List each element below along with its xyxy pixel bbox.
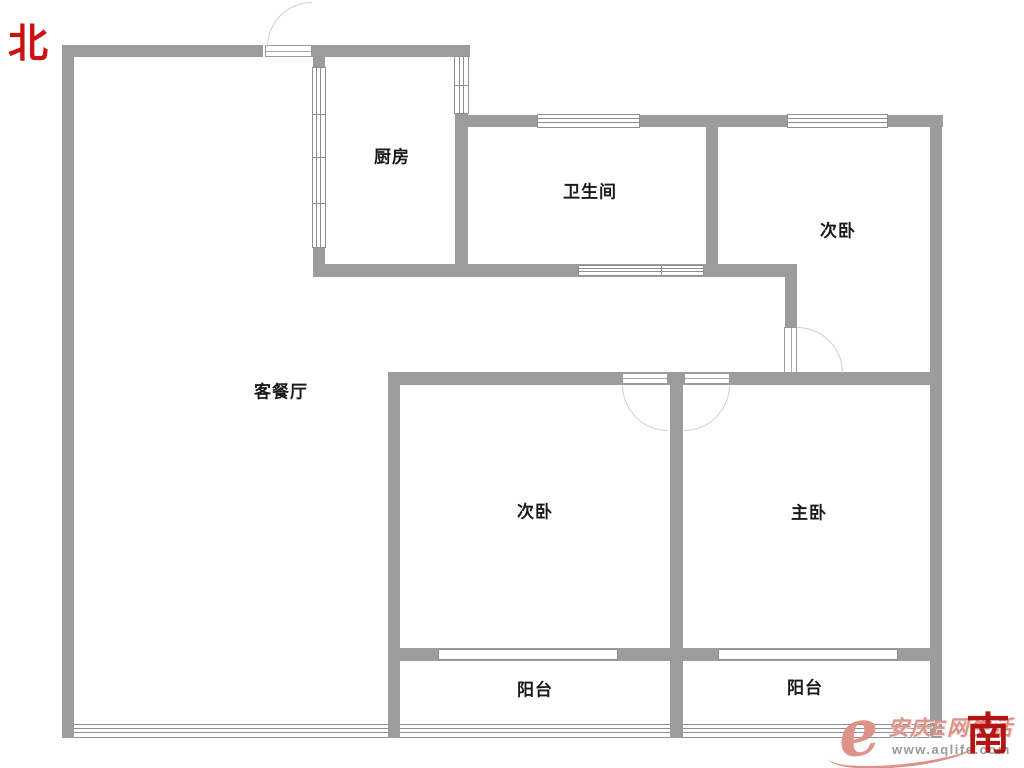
- watermark-logo-icon: e: [833, 694, 884, 768]
- master-bedroom-door-arc: [684, 385, 730, 431]
- room-label-kitchen: 厨房: [374, 143, 410, 168]
- floor-plan: 厨房 卫生间 次卧 客餐厅 次卧 主卧 阳台 阳台 e 安庆E网生活 www.a…: [0, 0, 1024, 768]
- bedroom-bottom-door-leaf: [622, 373, 668, 384]
- room-label-bedroom-top: 次卧: [820, 217, 856, 242]
- window-balcony-left: [438, 649, 618, 660]
- wall-top-left: [62, 45, 263, 57]
- wall-right-exterior: [930, 115, 942, 738]
- room-label-balcony-right: 阳台: [787, 674, 823, 699]
- wall-top-right-of-door: [312, 45, 470, 57]
- room-label-balcony-left: 阳台: [517, 676, 553, 701]
- window-bedroom-top-north: [787, 114, 888, 128]
- wall-bathroom-right: [706, 127, 718, 265]
- room-label-bathroom: 卫生间: [563, 178, 617, 203]
- bedroom-top-door-leaf: [784, 327, 797, 373]
- room-label-bedroom-bottom: 次卧: [517, 498, 553, 523]
- bedroom-top-door-arc: [797, 327, 843, 373]
- compass-south-label: 南: [966, 698, 1010, 762]
- window-bathroom-north: [537, 114, 640, 128]
- wall-stub-bedroom-top: [785, 277, 797, 327]
- entrance-door-arc: [267, 2, 312, 47]
- compass-north-label: 北: [8, 11, 48, 69]
- bedroom-bottom-door-arc: [622, 385, 668, 431]
- window-kitchen-left: [312, 67, 326, 248]
- wall-kitchen-bath-bottom: [313, 264, 797, 277]
- window-kitchen-right: [454, 56, 469, 114]
- wall-kitchen-left-upper: [313, 45, 325, 67]
- room-label-master-bedroom: 主卧: [791, 499, 827, 524]
- master-bedroom-door-leaf: [684, 373, 730, 384]
- window-balcony-right: [718, 649, 898, 660]
- sliding-door-bathroom: [578, 265, 704, 276]
- room-label-living-dining: 客餐厅: [254, 378, 308, 403]
- bottom-railing-window: [68, 724, 936, 738]
- wall-left-exterior: [62, 45, 74, 738]
- wall-central-vertical: [670, 372, 683, 738]
- wall-bedroom-bottom-left: [388, 372, 400, 738]
